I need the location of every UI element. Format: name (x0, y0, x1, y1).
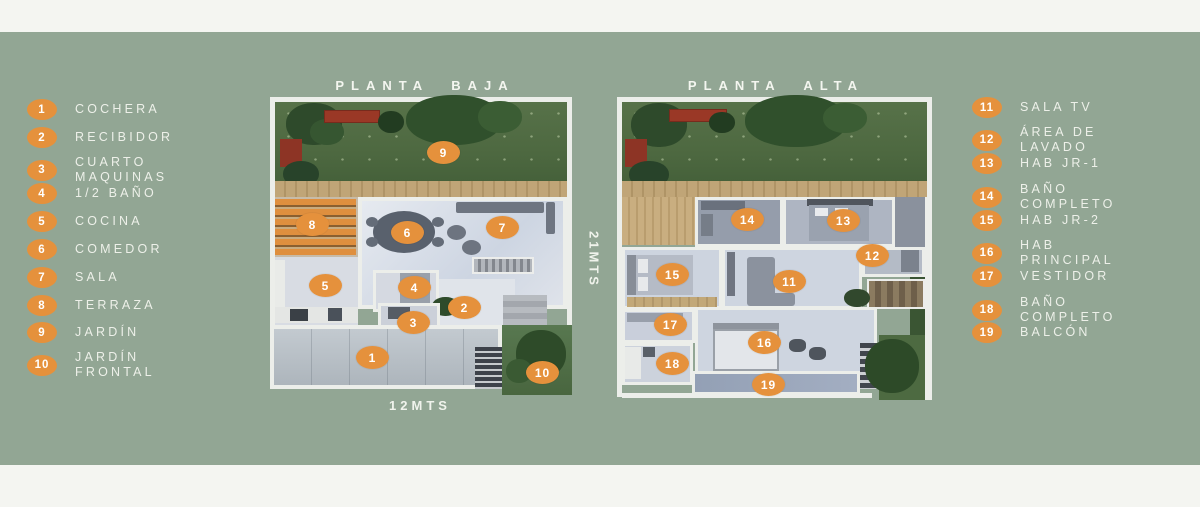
wall (925, 197, 932, 400)
dining-chair (432, 217, 444, 227)
legend-item-label: RECIBIDOR (75, 130, 173, 145)
room-marker-jardin: 9 (427, 141, 460, 164)
room-marker-medio-bano: 4 (398, 276, 431, 299)
room-marker-cochera: 1 (356, 346, 389, 369)
legend-item-recibidor: 2 RECIBIDOR (27, 127, 173, 148)
staircase (867, 279, 925, 309)
legend-item-label: JARDÍN FRONTAL (75, 350, 155, 380)
pillow (638, 277, 648, 291)
headboard (627, 255, 636, 295)
wood-deck (622, 181, 927, 197)
legend-item-sala: 7 SALA (27, 267, 120, 288)
legend-item-label: HAB JR-2 (1020, 213, 1101, 228)
legend-item-label: BAÑO COMPLETO (1020, 295, 1116, 325)
wardrobe (627, 297, 717, 307)
wall (617, 197, 622, 397)
legend-item-cuarto-maquinas: 3 CUARTO MAQUINAS (27, 155, 167, 185)
legend-item-label: COCINA (75, 214, 143, 229)
kitchen-appliance (328, 308, 342, 321)
title-planta-baja: PLANTA BAJA (325, 78, 525, 93)
legend-item-label: BALCÓN (1020, 325, 1091, 340)
legend-number-badge: 6 (27, 239, 57, 260)
washer (901, 250, 919, 272)
title-planta-alta: PLANTA ALTA (676, 78, 876, 93)
toilet (643, 347, 655, 357)
floor-plan-planta-alta: 11 12 13 14 15 16 17 18 19 (617, 97, 932, 400)
legend-item-label: CUARTO MAQUINAS (75, 155, 167, 185)
legend-number-badge: 15 (972, 210, 1002, 231)
wood-deck (275, 181, 567, 197)
legend-number-badge: 5 (27, 211, 57, 232)
room-marker-balcon: 19 (752, 373, 785, 396)
legend-item-sala-tv: 11 SALA TV (972, 97, 1093, 118)
legend-number-badge: 11 (972, 97, 1002, 118)
legend-item-hab-jr2: 15 HAB JR-2 (972, 210, 1101, 231)
room-marker-area-lavado: 12 (856, 244, 889, 267)
plant (709, 112, 735, 133)
legend-item-medio-bano: 4 1/2 BAÑO (27, 183, 157, 204)
kitchen-counter (275, 260, 285, 310)
wood-terrace-below (622, 197, 695, 245)
legend-item-jardin-frontal: 10 JARDÍN FRONTAL (27, 350, 155, 380)
room-marker-jardin-frontal: 10 (526, 361, 559, 384)
legend-number-badge: 18 (972, 300, 1002, 321)
legend-item-label: COCHERA (75, 102, 160, 117)
legend-item-hab-jr1: 13 HAB JR-1 (972, 153, 1101, 174)
room-marker-sala: 7 (486, 216, 519, 239)
sofa (456, 202, 544, 213)
legend-item-cocina: 5 COCINA (27, 211, 143, 232)
wall (270, 197, 275, 325)
legend-number-badge: 9 (27, 322, 57, 343)
garden-bench (324, 110, 380, 123)
kitchen-appliance (290, 309, 308, 321)
legend-number-badge: 14 (972, 187, 1002, 208)
bush (478, 101, 522, 133)
legend-number-badge: 17 (972, 266, 1002, 287)
kitchen-counter (275, 307, 358, 323)
room-marker-recibidor: 2 (448, 296, 481, 319)
room-marker-hab-jr2: 15 (656, 263, 689, 286)
legend-item-cochera: 1 COCHERA (27, 99, 160, 120)
wall (622, 393, 872, 398)
dimension-width-label: 12MTS (330, 398, 510, 413)
indoor-plant (844, 289, 870, 307)
room-marker-vestidor: 17 (654, 313, 687, 336)
legend-number-badge: 12 (972, 130, 1002, 151)
legend-item-balcon: 19 BALCÓN (972, 322, 1091, 343)
legend-item-label: ÁREA DE LAVADO (1020, 125, 1097, 155)
legend-item-label: 1/2 BAÑO (75, 186, 157, 201)
dining-chair (366, 217, 378, 227)
pillow (638, 259, 648, 273)
floor-plan-poster: 1 COCHERA 2 RECIBIDOR 3 CUARTO MAQUINAS … (0, 0, 1200, 507)
room-marker-hab-jr1: 13 (827, 209, 860, 232)
pillow (815, 208, 828, 216)
room-marker-cocina: 5 (309, 274, 342, 297)
legend-item-label: BAÑO COMPLETO (1020, 182, 1116, 212)
dining-chair (432, 237, 444, 247)
room-marker-terraza: 8 (296, 213, 329, 236)
room-marker-sala-tv: 11 (773, 270, 806, 293)
tree-canopy (865, 339, 919, 393)
legend-number-badge: 19 (972, 322, 1002, 343)
legend-item-label: VESTIDOR (1020, 269, 1110, 284)
tv-console (727, 252, 735, 296)
legend-item-label: SALA (75, 270, 120, 285)
room-marker-hab-principal: 16 (748, 331, 781, 354)
entry-steps (503, 295, 547, 329)
legend-number-badge: 8 (27, 295, 57, 316)
legend-item-label: HAB JR-1 (1020, 156, 1101, 171)
utility-closet (895, 197, 925, 247)
legend-number-badge: 4 (27, 183, 57, 204)
sofa-arm (546, 202, 555, 234)
legend-item-jardin: 9 JARDÍN (27, 322, 139, 343)
legend-number-badge: 1 (27, 99, 57, 120)
chair (809, 347, 826, 360)
legend-number-badge: 7 (27, 267, 57, 288)
room-marker-comedor: 6 (391, 221, 424, 244)
shower (701, 214, 713, 236)
legend-number-badge: 16 (972, 243, 1002, 264)
legend-item-label: JARDÍN (75, 325, 139, 340)
legend-item-vestidor: 17 VESTIDOR (972, 266, 1110, 287)
pouf (447, 225, 466, 240)
plant (378, 111, 404, 133)
legend-item-label: TERRAZA (75, 298, 156, 313)
room-marker-bano-completo-2: 18 (656, 352, 689, 375)
staircase (472, 257, 534, 274)
room-marker-cuarto-maquinas: 3 (397, 311, 430, 334)
legend-number-badge: 10 (27, 355, 57, 376)
legend-item-label: COMEDOR (75, 242, 163, 257)
wall (567, 197, 572, 325)
legend-number-badge: 2 (27, 127, 57, 148)
legend-item-label: SALA TV (1020, 100, 1093, 115)
legend-item-terraza: 8 TERRAZA (27, 295, 156, 316)
legend-item-bano-completo-2: 18 BAÑO COMPLETO (972, 295, 1116, 325)
legend-item-hab-principal: 16 HAB PRINCIPAL (972, 238, 1114, 268)
legend-number-badge: 3 (27, 160, 57, 181)
legend-item-label: HAB PRINCIPAL (1020, 238, 1114, 268)
pouf (462, 240, 481, 255)
dining-chair (366, 237, 378, 247)
bush (823, 103, 867, 133)
legend-item-comedor: 6 COMEDOR (27, 239, 163, 260)
dimension-depth-label: 21MTS (587, 220, 602, 300)
bathtub (625, 347, 641, 379)
floor-plan-planta-baja: 1 2 3 4 5 6 7 8 9 10 (270, 97, 572, 395)
room-marker-bano-completo-1: 14 (731, 208, 764, 231)
legend-item-bano-completo-1: 14 BAÑO COMPLETO (972, 182, 1116, 212)
legend-item-area-lavado: 12 ÁREA DE LAVADO (972, 125, 1097, 155)
chair (789, 339, 806, 352)
legend-number-badge: 13 (972, 153, 1002, 174)
sofa (747, 293, 795, 306)
